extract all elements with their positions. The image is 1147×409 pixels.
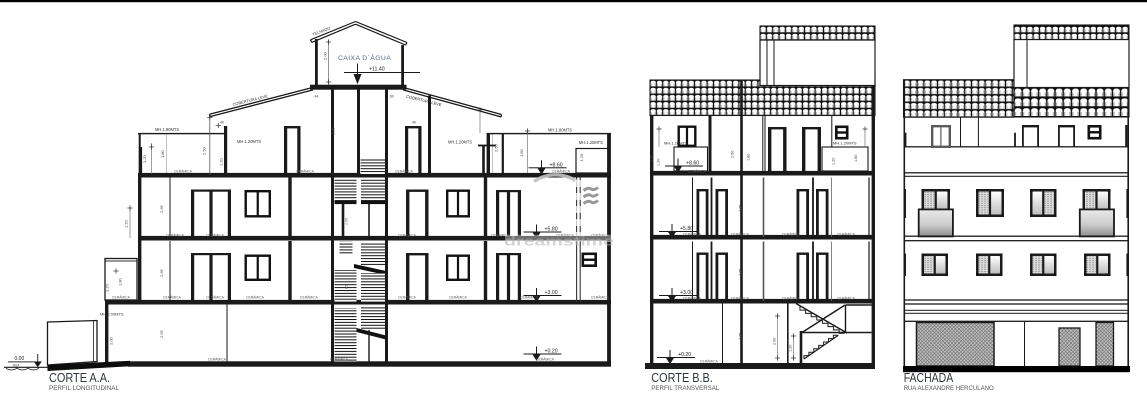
svg-text:CERÂMICA: CERÂMICA [246, 296, 265, 300]
svg-text:2.50: 2.50 [494, 143, 499, 152]
svg-text:CERÂMICA: CERÂMICA [330, 357, 349, 361]
svg-text:CERÂMICA: CERÂMICA [296, 169, 315, 173]
svg-text:CAIXA D´ÁGUA: CAIXA D´ÁGUA [338, 53, 391, 62]
svg-text:CERÂMICA: CERÂMICA [398, 296, 417, 300]
svg-text:CERÂMICA: CERÂMICA [520, 296, 539, 300]
svg-text:dreamstime: dreamstime [504, 234, 614, 249]
svg-text:+0.20: +0.20 [678, 352, 691, 358]
svg-text:CERÂMICA: CERÂMICA [395, 169, 414, 173]
svg-text:MH.1.20MTS: MH.1.20MTS [448, 140, 472, 145]
svg-text:1.80: 1.80 [519, 148, 524, 157]
svg-text:2.50: 2.50 [731, 151, 735, 158]
svg-text:2.50: 2.50 [202, 146, 207, 155]
svg-text:CERÂMICA: CERÂMICA [449, 296, 468, 300]
svg-text:CERÂMICA: CERÂMICA [782, 233, 801, 237]
svg-text:2.65: 2.65 [739, 205, 743, 212]
svg-text:.44: .44 [314, 95, 319, 99]
svg-text:1.20: 1.20 [657, 159, 661, 166]
svg-text:2.65: 2.65 [159, 268, 164, 277]
svg-text:CERÂMICA: CERÂMICA [782, 297, 801, 301]
svg-text:RUA ALEXANDRE HERCULANO: RUA ALEXANDRE HERCULANO [904, 385, 994, 392]
svg-text:1.20: 1.20 [105, 283, 110, 292]
svg-text:CERÂMICA: CERÂMICA [208, 357, 227, 361]
svg-text:2.65: 2.65 [739, 333, 743, 340]
svg-text:CERÂMICA: CERÂMICA [591, 296, 610, 300]
svg-text:1.80: 1.80 [160, 149, 165, 158]
svg-text:+3.00: +3.00 [545, 290, 558, 296]
svg-text:MH.1.20MTS: MH.1.20MTS [664, 141, 688, 146]
svg-text:CERÂMICA: CERÂMICA [206, 234, 225, 238]
svg-text:CERÂMICA: CERÂMICA [731, 297, 750, 301]
svg-text:CERÂMICA: CERÂMICA [688, 169, 707, 173]
svg-text:2.65: 2.65 [159, 329, 164, 338]
svg-text:CERÂMICA: CERÂMICA [683, 297, 702, 301]
svg-text:CERÂMICA: CERÂMICA [700, 360, 719, 364]
svg-text:FACHADA: FACHADA [904, 371, 954, 385]
svg-text:PERFIL TRANSVERSAL: PERFIL TRANSVERSAL [651, 385, 719, 392]
svg-text:CERÂMICA: CERÂMICA [731, 233, 750, 237]
svg-text:.40: .40 [411, 121, 416, 125]
svg-text:2.00: 2.00 [109, 336, 114, 345]
svg-text:CORTE B.B.: CORTE B.B. [651, 371, 713, 385]
svg-text:MH.1.20MTS: MH.1.20MTS [833, 141, 857, 146]
svg-text:1.20: 1.20 [579, 153, 584, 162]
svg-text:2.65: 2.65 [159, 204, 164, 213]
svg-text:CERÂMICA: CERÂMICA [174, 169, 193, 173]
svg-text:1.80: 1.80 [747, 154, 751, 161]
svg-text:1.20: 1.20 [789, 345, 793, 352]
svg-text:2.65: 2.65 [345, 218, 349, 225]
svg-text:+8.60: +8.60 [686, 161, 699, 167]
svg-text:+5.80: +5.80 [545, 227, 558, 233]
svg-text:+5.80: +5.80 [680, 226, 693, 232]
svg-text:3.85: 3.85 [331, 126, 336, 135]
svg-text:2.65: 2.65 [739, 269, 743, 276]
svg-text:CERÂMICA: CERÂMICA [837, 297, 856, 301]
svg-text:2.00: 2.00 [323, 51, 328, 60]
svg-text:2.00: 2.00 [773, 338, 777, 345]
svg-text:MH.1.20MTS: MH.1.20MTS [237, 139, 261, 144]
svg-text:2.65: 2.65 [345, 285, 349, 292]
svg-text:1.20: 1.20 [124, 219, 129, 228]
svg-text:CERÂMICA: CERÂMICA [206, 296, 225, 300]
svg-text:+8.60: +8.60 [550, 162, 563, 168]
svg-text:.40: .40 [219, 121, 224, 125]
svg-text:MH.1.20MTS: MH.1.20MTS [579, 140, 603, 145]
svg-text:MH.2.00MTS: MH.2.00MTS [100, 312, 124, 317]
svg-text:+3.00: +3.00 [680, 290, 693, 296]
svg-text:MH.1.80MTS: MH.1.80MTS [155, 127, 179, 132]
svg-text:1.80: 1.80 [650, 155, 654, 162]
svg-text:CERÂMICA: CERÂMICA [166, 234, 185, 238]
svg-text:CERÂMICA: CERÂMICA [398, 234, 417, 238]
svg-text:RUA: RUA [13, 363, 21, 367]
svg-text:MH.1.80MTS: MH.1.80MTS [548, 128, 572, 133]
svg-text:.60: .60 [389, 95, 394, 99]
svg-text:PERFIL LONGITUDINAL: PERFIL LONGITUDINAL [49, 385, 119, 392]
svg-text:1.20: 1.20 [219, 157, 224, 166]
svg-text:1.80: 1.80 [118, 277, 123, 286]
svg-text:CERÂMICA: CERÂMICA [112, 296, 131, 300]
svg-text:+0.20: +0.20 [545, 349, 558, 355]
svg-text:1.20: 1.20 [142, 154, 147, 163]
svg-text:CERÂMICA: CERÂMICA [837, 233, 856, 237]
svg-text:+11.40: +11.40 [369, 67, 385, 73]
svg-text:CORTE A.A.: CORTE A.A. [49, 371, 110, 385]
svg-text:CERÂMICA: CERÂMICA [163, 296, 182, 300]
svg-text:CERÂMICA: CERÂMICA [300, 296, 319, 300]
svg-text:0.00: 0.00 [15, 356, 25, 362]
svg-text:1.20: 1.20 [832, 158, 836, 165]
svg-text:CERÂMICA: CERÂMICA [683, 233, 702, 237]
svg-text:CERÂMICA: CERÂMICA [552, 169, 571, 173]
svg-text:CERÂMICA: CERÂMICA [536, 357, 555, 361]
svg-text:1.80: 1.80 [854, 155, 858, 162]
